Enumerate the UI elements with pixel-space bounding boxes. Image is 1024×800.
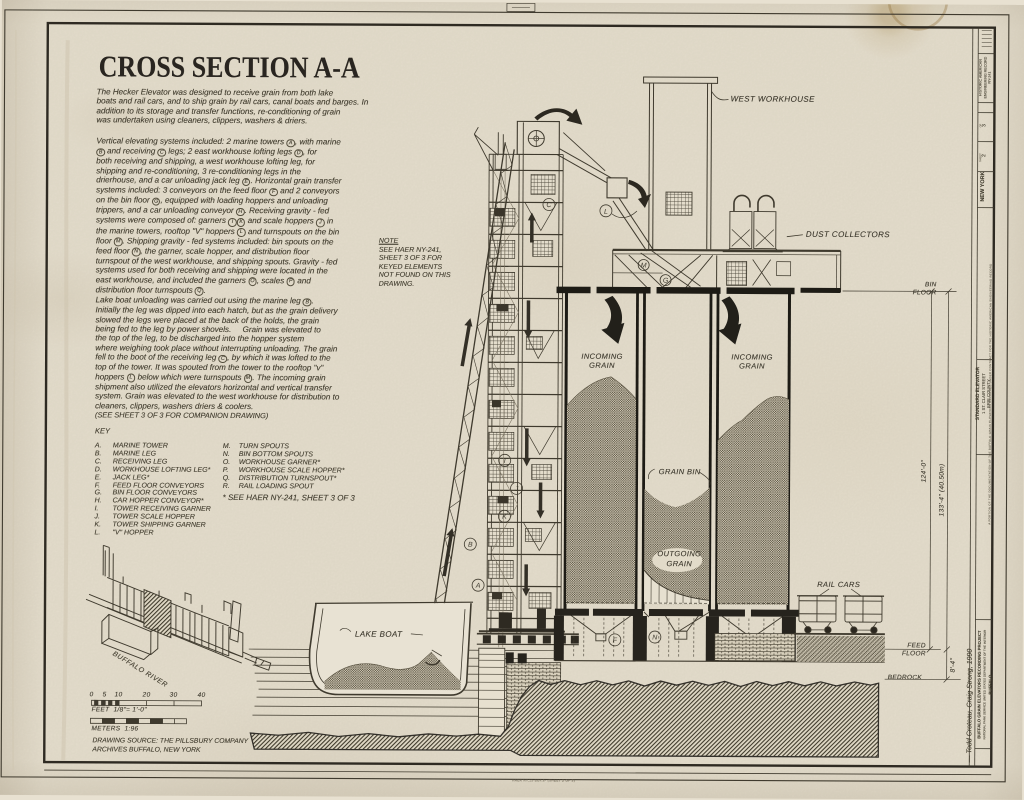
svg-text:B: B [468, 542, 473, 549]
svg-text:A: A [475, 583, 481, 590]
svg-text:M: M [641, 262, 647, 269]
svg-text:I: I [504, 458, 506, 465]
svg-text:L: L [604, 209, 608, 216]
svg-text:F: F [613, 637, 618, 644]
svg-text:K: K [502, 514, 507, 521]
svg-text:G: G [663, 278, 669, 285]
svg-text:J: J [514, 486, 519, 493]
